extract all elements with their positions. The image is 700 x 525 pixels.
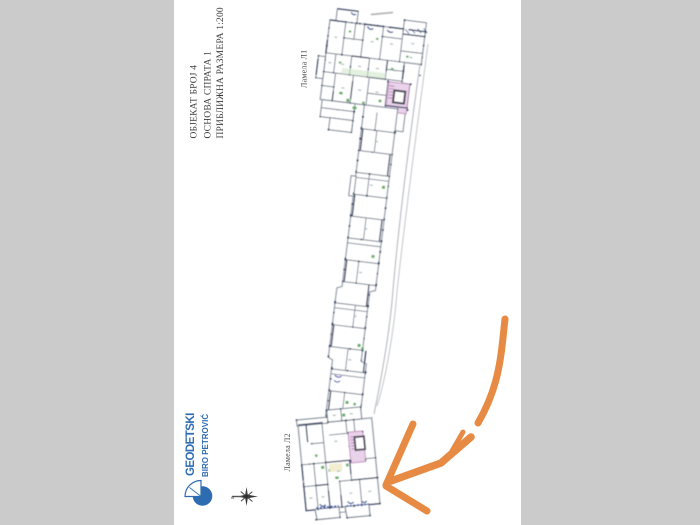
svg-text:ПРИБЛИЖНА РАЗМЕРА 1:200: ПРИБЛИЖНА РАЗМЕРА 1:200: [216, 7, 226, 138]
svg-text:ОБЈЕКАТ БРОЈ 4: ОБЈЕКАТ БРОЈ 4: [190, 65, 200, 139]
svg-text:Ламела Л1: Ламела Л1: [300, 50, 309, 88]
svg-text:BIRO PETROVIĆ: BIRO PETROVIĆ: [201, 414, 210, 477]
svg-text:GEODETSKI: GEODETSKI: [185, 413, 197, 476]
svg-text:ОСНОВА СПРАТА 1: ОСНОВА СПРАТА 1: [204, 51, 214, 139]
svg-text:Ламела Л2: Ламела Л2: [283, 433, 292, 471]
